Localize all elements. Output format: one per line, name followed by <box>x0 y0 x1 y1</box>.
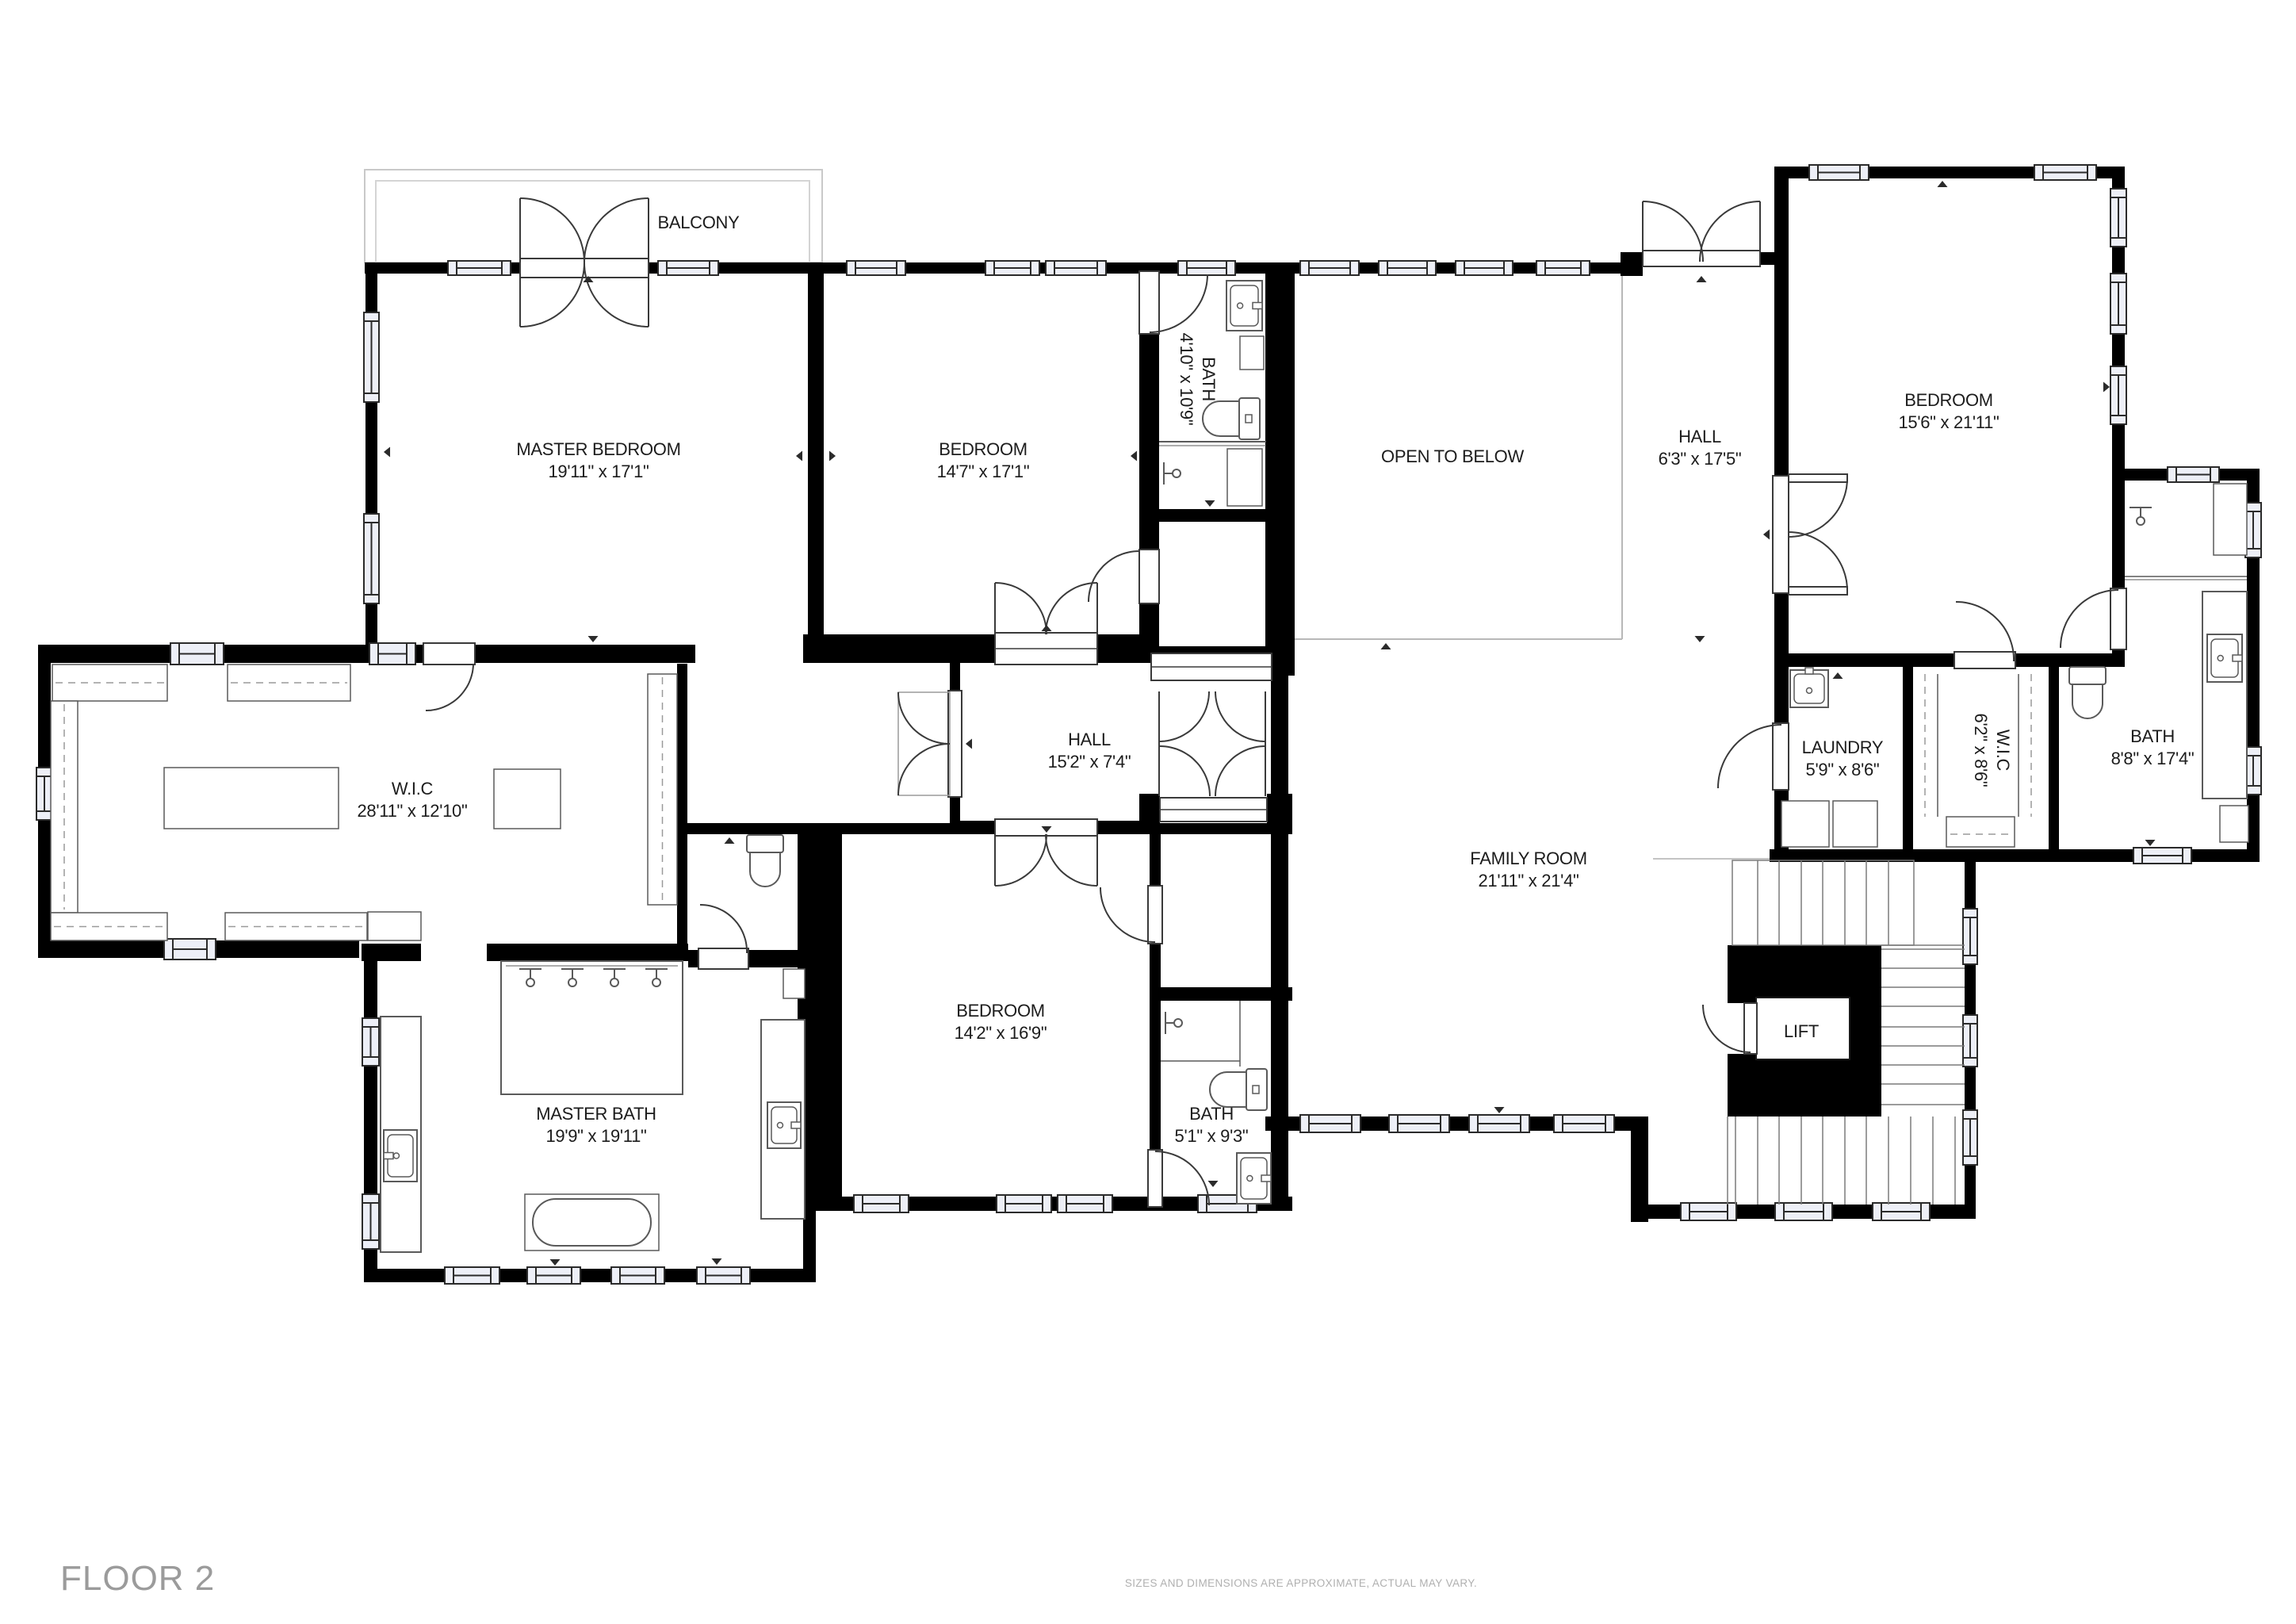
svg-text:BATH: BATH <box>1199 357 1219 401</box>
svg-text:LAUNDRY: LAUNDRY <box>1802 737 1884 757</box>
svg-text:MASTER BATH: MASTER BATH <box>536 1104 656 1124</box>
svg-text:BATH: BATH <box>1189 1104 1234 1124</box>
svg-text:19'11" x 17'1": 19'11" x 17'1" <box>548 462 649 481</box>
svg-text:4'10" x 10'9": 4'10" x 10'9" <box>1177 333 1196 426</box>
svg-text:BEDROOM: BEDROOM <box>939 439 1027 459</box>
svg-text:6'3" x 17'5": 6'3" x 17'5" <box>1659 449 1742 469</box>
svg-text:W.I.C: W.I.C <box>1993 730 2013 772</box>
svg-text:BATH: BATH <box>2130 726 2175 746</box>
svg-text:SIZES AND DIMENSIONS ARE APPRO: SIZES AND DIMENSIONS ARE APPROXIMATE, AC… <box>1125 1577 1477 1589</box>
svg-text:FLOOR 2: FLOOR 2 <box>60 1559 215 1598</box>
svg-text:MASTER BEDROOM: MASTER BEDROOM <box>516 439 680 459</box>
svg-text:8'8" x 17'4": 8'8" x 17'4" <box>2111 749 2195 768</box>
svg-text:FAMILY ROOM: FAMILY ROOM <box>1470 848 1586 868</box>
svg-text:19'9" x 19'11": 19'9" x 19'11" <box>545 1126 646 1146</box>
svg-text:HALL: HALL <box>1068 730 1111 749</box>
svg-text:21'11" x 21'4": 21'11" x 21'4" <box>1478 871 1578 891</box>
svg-text:5'1" x 9'3": 5'1" x 9'3" <box>1175 1126 1249 1146</box>
svg-text:OPEN TO BELOW: OPEN TO BELOW <box>1381 446 1524 466</box>
svg-text:HALL: HALL <box>1678 427 1721 446</box>
svg-text:14'2" x 16'9": 14'2" x 16'9" <box>955 1023 1047 1043</box>
svg-text:6'2" x 8'6": 6'2" x 8'6" <box>1971 714 1991 787</box>
svg-text:28'11" x 12'10": 28'11" x 12'10" <box>358 801 468 821</box>
svg-text:BALCONY: BALCONY <box>657 213 740 232</box>
svg-text:LIFT: LIFT <box>1784 1021 1819 1041</box>
svg-text:5'9" x 8'6": 5'9" x 8'6" <box>1806 760 1880 779</box>
svg-text:14'7" x 17'1": 14'7" x 17'1" <box>937 462 1030 481</box>
svg-text:BEDROOM: BEDROOM <box>1904 390 1993 410</box>
svg-text:W.I.C: W.I.C <box>392 779 434 799</box>
svg-text:15'6" x 21'11": 15'6" x 21'11" <box>1898 412 1999 432</box>
svg-text:BEDROOM: BEDROOM <box>956 1001 1045 1021</box>
svg-text:15'2" x 7'4": 15'2" x 7'4" <box>1048 752 1131 772</box>
